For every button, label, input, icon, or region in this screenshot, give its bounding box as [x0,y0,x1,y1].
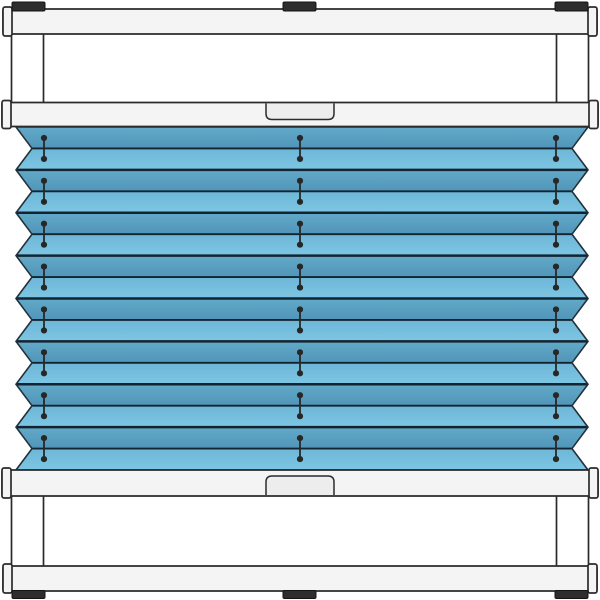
cord-dot-bottom [553,156,559,162]
top-window-beam-body [3,9,597,34]
cord-dot-bottom [553,199,559,205]
clamp-bracket-2 [283,2,316,11]
cord-dot-bottom [41,413,47,419]
cord-dot-top [41,221,47,227]
cord-dot-bottom [553,370,559,376]
cord-dot-top [297,392,303,398]
cord-dot-bottom [297,242,303,248]
cord-dot-top [553,263,559,269]
cord-dot-top [41,263,47,269]
cord-dot-top [297,435,303,441]
cord-dot-top [41,435,47,441]
cord-dot-bottom [297,327,303,333]
cord-dot-bottom [41,156,47,162]
blind-bottom-rail-end-cap-left [2,468,11,498]
cord-dot-bottom [41,370,47,376]
clamp-foot-3 [555,591,588,599]
sash-member-top-left [12,32,44,104]
cord-dot-top [41,392,47,398]
cord-dot-top [553,349,559,355]
cord-dot-bottom [297,156,303,162]
cord-dot-bottom [41,199,47,205]
top-window-beam-end-cap-left [3,7,12,36]
scene-svg [0,0,600,600]
cord-dot-top [553,178,559,184]
cord-dot-top [41,135,47,141]
blind-top-rail-end-cap-right [589,101,598,129]
cord-dot-top [297,178,303,184]
cord-dot-bottom [297,284,303,290]
cord-dot-bottom [297,370,303,376]
cord-dot-bottom [553,327,559,333]
sash-member-bottom-right [557,495,589,567]
cord-dot-bottom [297,199,303,205]
sash-member-top-right [557,32,589,104]
cord-dot-top [297,221,303,227]
cord-dot-bottom [41,456,47,462]
cord-dot-top [297,349,303,355]
blind-top-rail [2,101,598,129]
cord-dot-bottom [553,242,559,248]
bottom-window-beam-end-cap-right [588,564,597,593]
clamp-bracket-1 [12,2,45,11]
cord-dot-top [41,306,47,312]
cord-dot-bottom [553,413,559,419]
blind-bottom-rail-end-cap-right [589,468,598,498]
cord-dot-top [297,263,303,269]
cord-dot-top [41,178,47,184]
clamp-foot-2 [283,591,316,599]
cord-dot-top [297,135,303,141]
cord-dot-top [553,435,559,441]
cord-dot-top [553,135,559,141]
bottom-window-beam-end-cap-left [3,564,12,593]
cord-dot-bottom [41,327,47,333]
cord-dot-top [553,306,559,312]
bottom-window-beam-body [3,566,597,591]
clamp-bracket-3 [555,2,588,11]
cord-dot-bottom [553,284,559,290]
pleated-blind-illustration [0,0,600,600]
cord-dot-bottom [553,456,559,462]
cord-dot-top [41,349,47,355]
blind-top-rail-end-cap-left [2,101,11,129]
clamp-foot-1 [12,591,45,599]
cord-dot-bottom [297,456,303,462]
cord-dot-top [297,306,303,312]
cord-dot-bottom [41,284,47,290]
cord-dot-bottom [41,242,47,248]
blind-bottom-rail-grip-tab [266,476,334,495]
cord-dot-bottom [297,413,303,419]
cord-dot-top [553,221,559,227]
blind-bottom-rail [2,468,598,498]
sash-member-bottom-left [12,495,44,567]
blind-top-rail-grip-tab [266,104,334,120]
top-window-beam-end-cap-right [588,7,597,36]
cord-dot-top [553,392,559,398]
